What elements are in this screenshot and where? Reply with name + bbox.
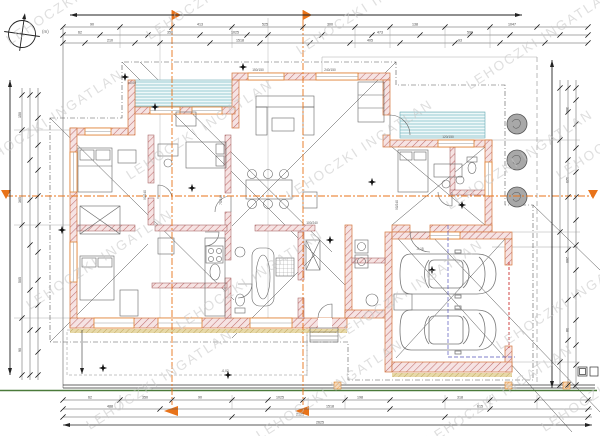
watermark-text: LEHOCZKI INGATLAN [3, 0, 155, 48]
gate-posts [578, 367, 598, 376]
section-arrow-icon [588, 190, 598, 199]
svg-text:93: 93 [458, 39, 462, 43]
svg-text:120/150: 120/150 [442, 135, 454, 139]
wall-unit [358, 82, 384, 122]
svg-text:198: 198 [357, 396, 363, 400]
svg-text:1518: 1518 [326, 405, 334, 409]
desk [118, 150, 136, 163]
svg-text:260: 260 [565, 257, 569, 263]
tree-icon [507, 187, 527, 207]
svg-text:473: 473 [377, 31, 383, 35]
svg-text:150: 150 [18, 112, 22, 118]
svg-text:150/150: 150/150 [252, 68, 264, 72]
bed [78, 148, 112, 192]
watermark-text: LEHOCZKI INGATLAN [463, 0, 600, 93]
svg-text:58: 58 [565, 328, 569, 332]
wardrobe [120, 290, 138, 316]
svg-text:1025: 1025 [276, 396, 284, 400]
cabinet [303, 192, 317, 208]
scale-note: (m) [42, 29, 49, 34]
svg-text:138: 138 [412, 23, 418, 27]
section-arrow-icon [164, 406, 178, 416]
bed [398, 150, 428, 192]
svg-text:590: 590 [467, 31, 473, 35]
svg-text:525: 525 [262, 23, 268, 27]
svg-text:318: 318 [457, 396, 463, 400]
sofa [256, 96, 314, 135]
svg-text:210: 210 [107, 39, 113, 43]
svg-text:90: 90 [198, 396, 202, 400]
desk [434, 164, 462, 177]
svg-text:100/240: 100/240 [306, 221, 318, 225]
watermark-text: LEHOCZKI INGATLAN [283, 96, 435, 202]
tree-icon [507, 114, 527, 134]
svg-text:300: 300 [565, 107, 569, 113]
entry-door-opening [318, 318, 332, 328]
svg-text:90: 90 [90, 23, 94, 27]
svg-text:240/150: 240/150 [324, 68, 336, 72]
svg-text:90/240: 90/240 [395, 200, 399, 210]
svg-text:2625: 2625 [316, 421, 324, 425]
washer-dryer [355, 240, 368, 268]
svg-text:-0,15: -0,15 [416, 247, 423, 251]
svg-text:62: 62 [78, 31, 82, 35]
washbasin [235, 247, 245, 257]
svg-text:90/240: 90/240 [143, 190, 147, 200]
watermark-text: LEHOCZKI INGATLAN [293, 0, 445, 58]
svg-text:505: 505 [18, 277, 22, 283]
svg-text:365: 365 [18, 197, 22, 203]
svg-text:90: 90 [18, 348, 22, 352]
svg-text:62: 62 [88, 396, 92, 400]
floor-plan-canvas: 90 413 525 300 138 1047 62 350 1025 473 … [0, 0, 600, 436]
watermark-text: LEHOCZKI INGATLAN [23, 206, 175, 312]
toilet [467, 157, 477, 174]
svg-text:1025: 1025 [231, 31, 239, 35]
chair [442, 180, 450, 188]
svg-text:75/240: 75/240 [219, 195, 223, 205]
svg-text:413: 413 [197, 23, 203, 27]
svg-text:405: 405 [367, 39, 373, 43]
architectural-floor-plan: 90 413 525 300 138 1047 62 350 1025 473 … [0, 0, 600, 436]
watermark-text: LEHOCZKI INGATLAN [143, 0, 295, 43]
watermark-text: LEHOCZKI INGATLAN [253, 336, 405, 436]
svg-text:±0,00: ±0,00 [128, 81, 136, 85]
svg-text:1518: 1518 [236, 39, 244, 43]
section-arrow-icon [1, 190, 11, 199]
svg-text:1047: 1047 [508, 23, 516, 27]
